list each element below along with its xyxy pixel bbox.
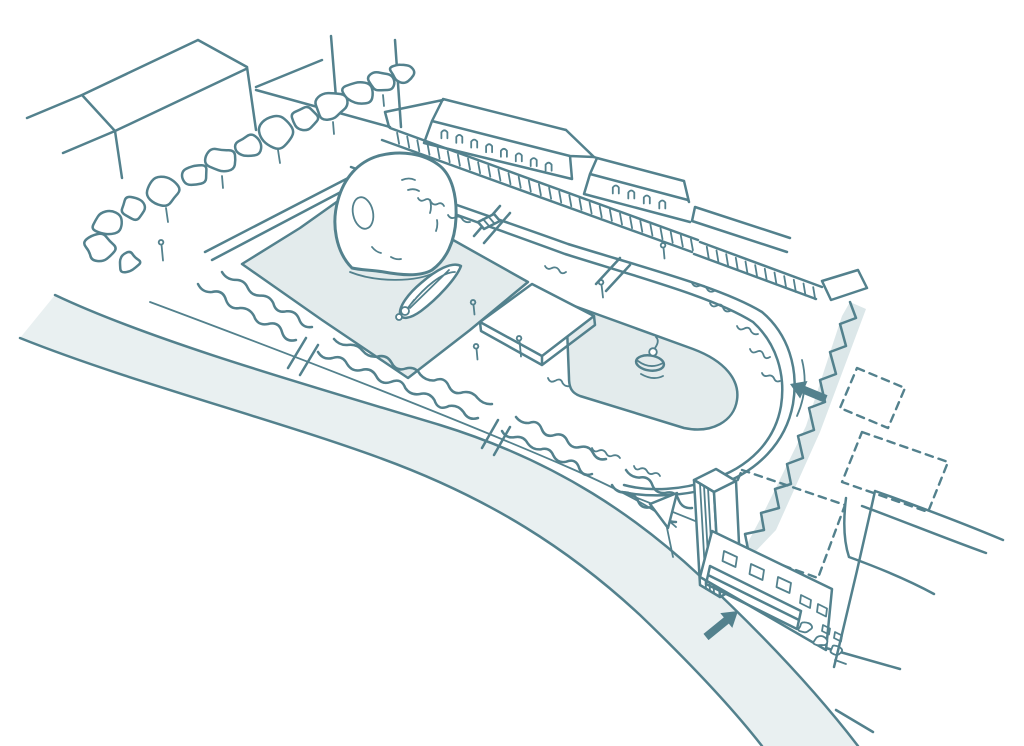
plaza-shadow [746, 302, 866, 553]
tree [205, 149, 235, 171]
person [474, 344, 479, 360]
street-junction [834, 491, 1003, 732]
tree [122, 197, 145, 220]
station-bush [798, 622, 812, 632]
tree [93, 211, 122, 234]
station-bush [813, 636, 827, 645]
bush [84, 234, 115, 261]
tree [235, 135, 261, 156]
tree [147, 177, 180, 206]
terrace-b-windows [613, 186, 666, 209]
tree [259, 116, 293, 149]
person [661, 243, 666, 259]
tree [315, 93, 347, 120]
bush [120, 252, 140, 272]
tree [182, 165, 206, 185]
tree [292, 107, 318, 130]
colonnade-end-cap [822, 270, 867, 300]
tree [368, 72, 394, 90]
colonnade-ticks-right [707, 247, 815, 299]
person [159, 240, 164, 261]
site-plan-sketch [0, 0, 1024, 746]
person [599, 280, 604, 298]
shell-dome-pavilion [335, 153, 456, 280]
